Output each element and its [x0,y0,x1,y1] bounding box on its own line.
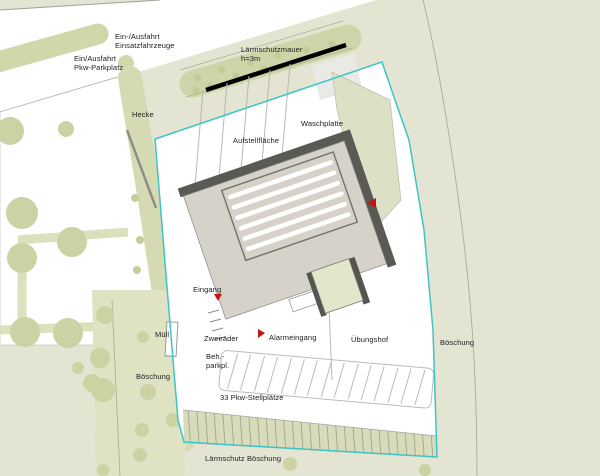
label-noise-embankment: Lärmschutz Böschung [205,454,281,463]
label-entrance-emergency: Ein-/Ausfahrt Einsatzfahrzeuge [115,32,175,50]
label-entrance-car-park: Ein/Ausfahrt Pkw-Parkplatz [74,54,123,72]
label-embankment-left: Böschung [136,372,170,381]
label-entrance: Eingang [193,285,221,294]
label-wash-pad: Waschplatte [301,119,343,128]
label-drill-yard: Übungshof [351,335,388,344]
label-two-wheelers: Zweiräder [204,334,238,343]
label-embankment-right: Böschung [440,338,474,347]
label-alarm-entrance: Alarmeingang [269,333,316,342]
site-plan: Ein-/Ausfahrt Einsatzfahrzeuge Ein/Ausfa… [0,0,600,476]
label-noise-wall: Lärmschutzmauer h=3m [241,45,303,63]
label-car-spaces: 33 Pkw-Stellplätze [220,393,284,402]
label-staging-area: Aufstellfläche [233,136,279,145]
label-waste: Müll [155,330,169,339]
label-hedge: Hecke [132,110,154,119]
label-disabled-parking: Beh.- parkpl. [206,352,229,370]
